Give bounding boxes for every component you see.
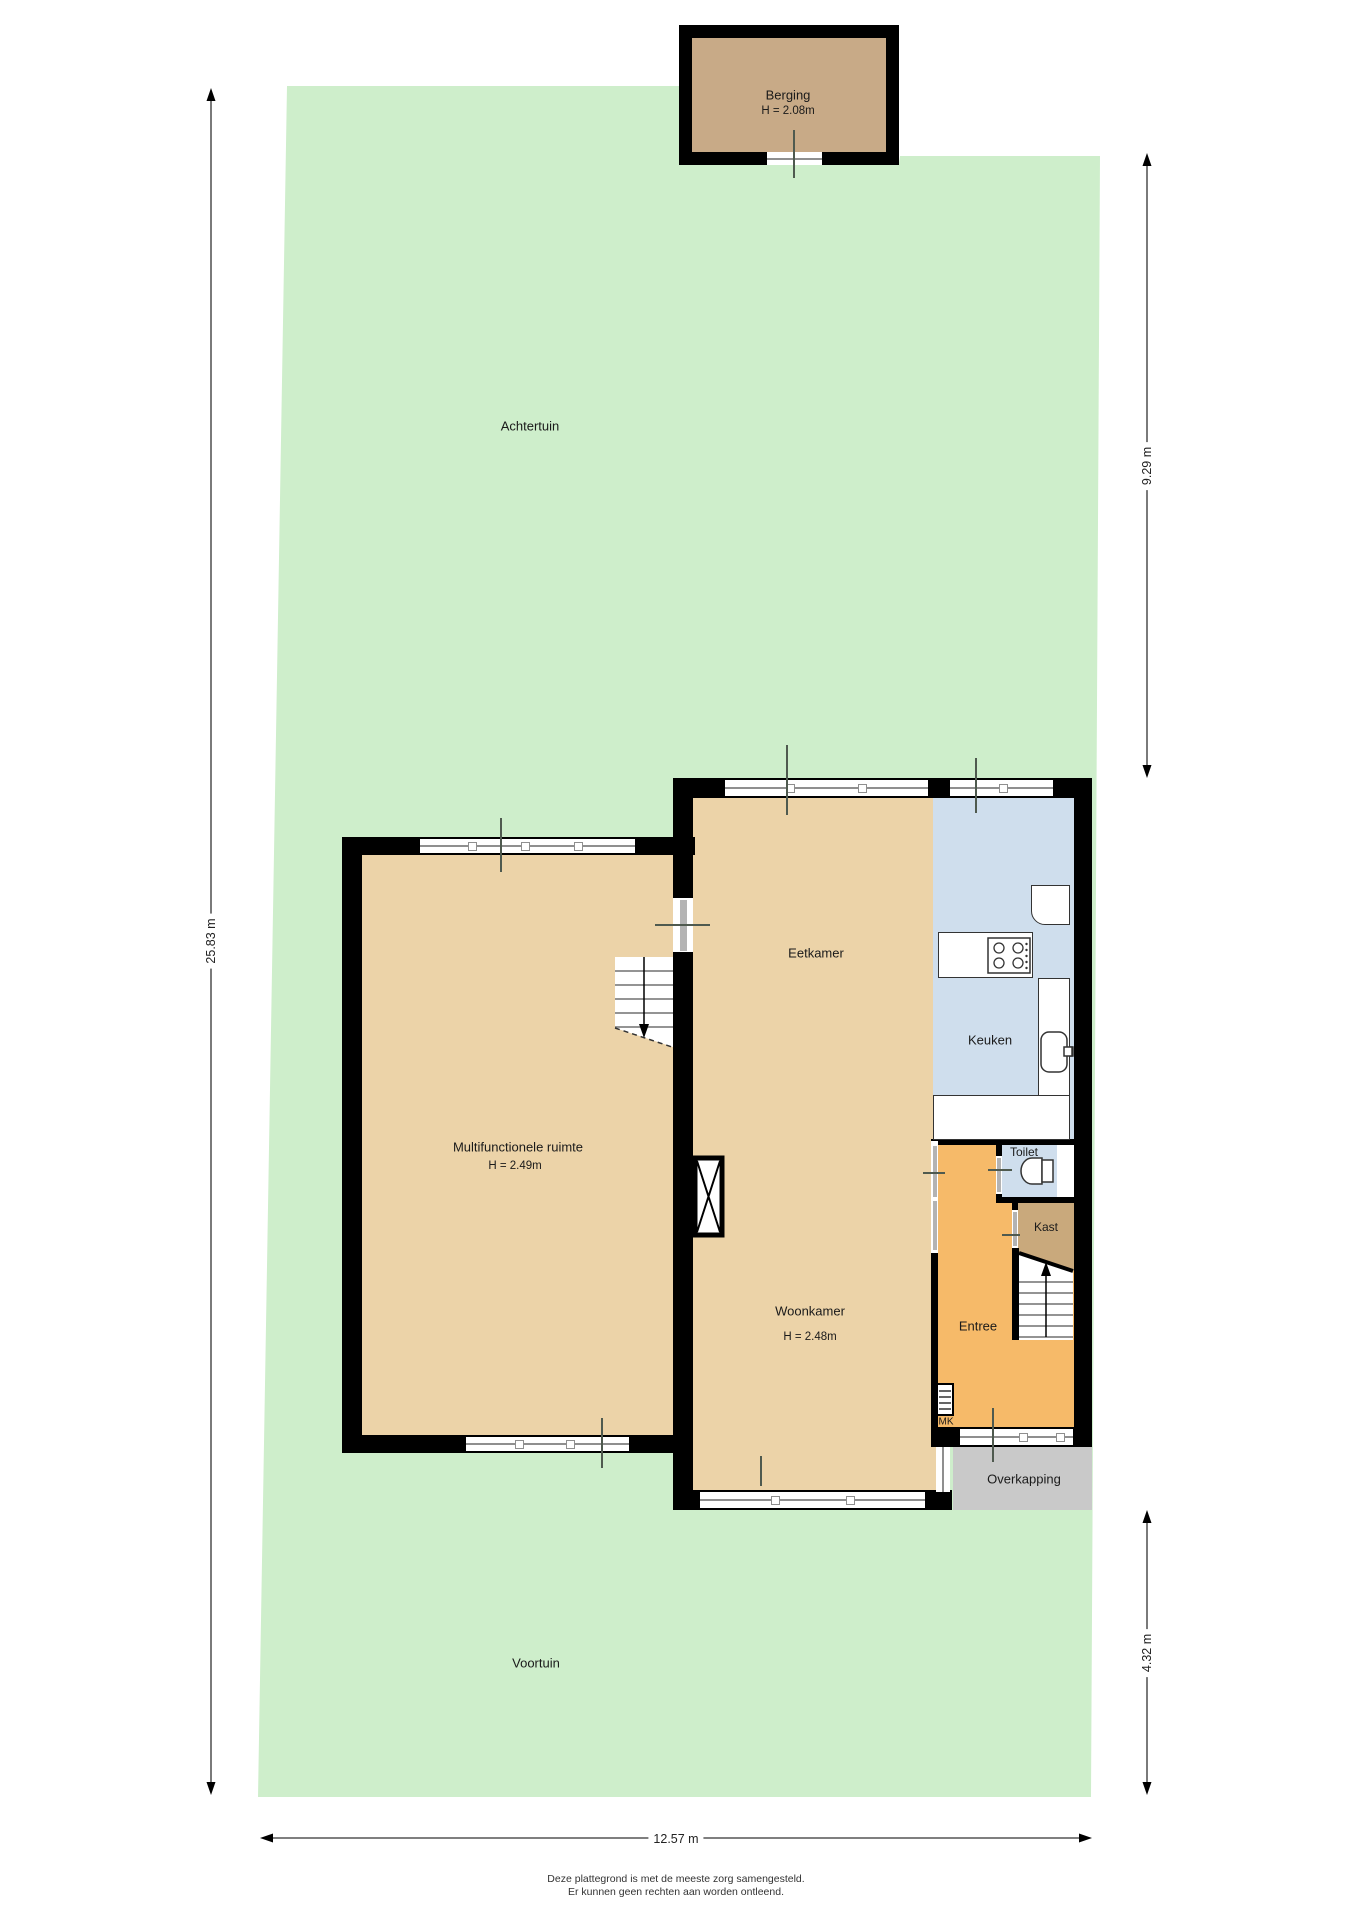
label-woonkamer-height: H = 2.48m [783, 1331, 836, 1343]
label-woonkamer: Woonkamer [775, 1304, 845, 1319]
label-eetkamer: Eetkamer [788, 946, 844, 961]
dimension-lines [211, 93, 1147, 1838]
footer-disclaimer-line2: Er kunnen geen rechten aan worden ontlee… [568, 1886, 784, 1898]
dimension-right-bottom: 4.32 m [1139, 1629, 1155, 1677]
dimension-arrowheads [207, 88, 1152, 1843]
label-achtertuin: Achtertuin [501, 419, 560, 434]
dimension-right-top: 9.29 m [1139, 442, 1155, 490]
label-overkapping: Overkapping [987, 1472, 1061, 1487]
label-berging-height: H = 2.08m [761, 105, 814, 117]
label-keuken: Keuken [968, 1033, 1012, 1048]
dimension-bottom: 12.57 m [648, 1831, 703, 1847]
footer-disclaimer-line1: Deze plattegrond is met de meeste zorg s… [547, 1873, 804, 1885]
floorplan-canvas: 25.83 m 9.29 m 4.32 m 12.57 m Achtertuin… [0, 0, 1358, 1920]
label-meterkast: MK [939, 1417, 954, 1428]
label-entree: Entree [959, 1319, 997, 1334]
label-toilet: Toilet [1010, 1145, 1038, 1159]
label-multifunctionele-ruimte-height: H = 2.49m [488, 1160, 541, 1172]
label-voortuin: Voortuin [512, 1656, 560, 1671]
label-multifunctionele-ruimte: Multifunctionele ruimte [453, 1140, 583, 1155]
dimension-left: 25.83 m [203, 913, 219, 968]
label-kast: Kast [1034, 1220, 1058, 1234]
label-berging: Berging [766, 88, 811, 103]
